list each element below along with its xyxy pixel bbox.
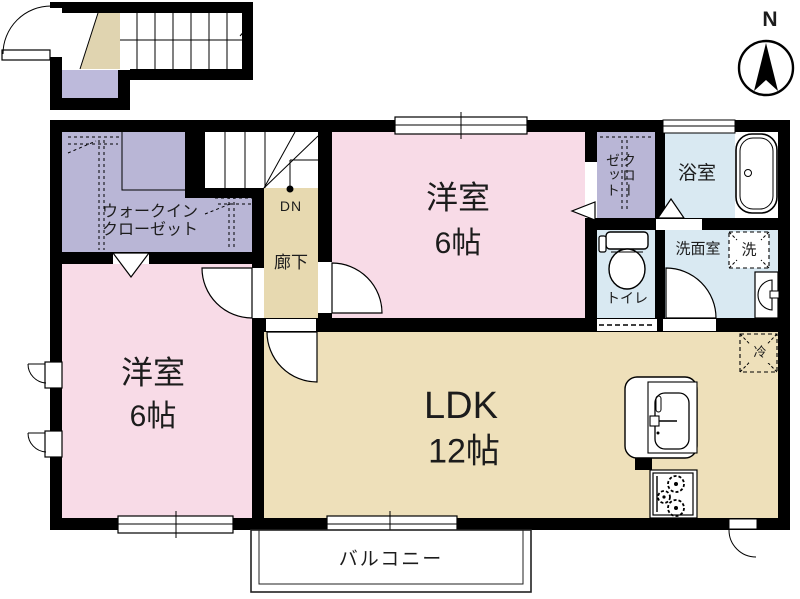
wic-label: ウォークインクローゼット — [102, 204, 198, 241]
washbasin-icon — [755, 272, 779, 318]
washroom-label: 洗面室 — [675, 240, 720, 257]
ldk-size: 12帖 — [428, 432, 500, 471]
ldk-exterior-door — [729, 519, 757, 557]
stairs-down-dot — [287, 186, 294, 193]
entrance-door-leaf — [2, 50, 50, 60]
bathroom-window — [663, 120, 735, 133]
bathroom-label: 浴室 — [678, 163, 716, 185]
entrance-stairs — [2, 2, 253, 110]
bedroom-left-label: 洋室 — [121, 355, 185, 392]
balcony-label: バルコニー — [339, 549, 444, 571]
toilet-sliding-door — [597, 319, 657, 331]
stove-icon — [653, 473, 693, 516]
bedroom-top-size: 6帖 — [435, 227, 482, 262]
stairs-dn-label: DN — [280, 198, 302, 214]
bedroom-top-label: 洋室 — [426, 180, 490, 217]
toilet-label: トイレ — [606, 290, 648, 306]
floor-plan-drawing — [0, 0, 800, 599]
compass-icon — [739, 41, 793, 95]
closet-label: クローゼット — [605, 148, 637, 202]
refrigerator-label: 冷 — [753, 346, 766, 361]
floor-plan: ウォークインクローゼット DN 廊下 洋室 6帖 クローゼット 浴室 トイレ 洗… — [0, 0, 800, 599]
compass-north-label: N — [762, 8, 777, 32]
kitchen-sink-icon — [648, 382, 697, 453]
ldk-label: LDK — [424, 385, 498, 429]
entrance-door-swing — [3, 6, 51, 54]
washing-machine-label: 洗 — [741, 241, 756, 258]
hallway-label: 廊下 — [274, 253, 308, 273]
bedroom-left-size: 6帖 — [130, 400, 177, 435]
bedroom-left-west-window-2 — [28, 431, 62, 457]
bathtub-icon — [736, 134, 777, 213]
bedroom-left-west-window-1 — [28, 362, 62, 388]
